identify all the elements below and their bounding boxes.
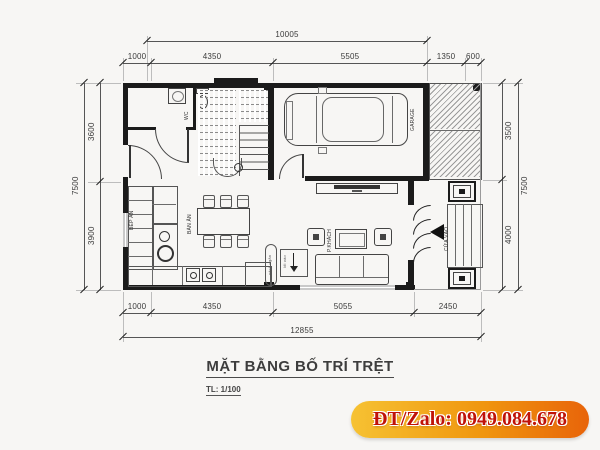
partition-label: vách ngăn — [268, 248, 272, 282]
hatch-pattern — [430, 131, 480, 177]
dim-label: 600 — [458, 53, 488, 61]
dimension-line — [123, 313, 481, 314]
step-line — [463, 204, 464, 266]
extension-line — [88, 182, 121, 183]
wall — [123, 83, 128, 145]
dimension-line — [502, 83, 503, 290]
contact-phone-label: ĐT/Zalo: 0949.084.678 — [373, 408, 567, 431]
dimension-line — [123, 337, 481, 338]
folding-door-panel — [413, 247, 431, 263]
counter-line — [128, 242, 152, 243]
dim-label: 5505 — [316, 53, 384, 61]
dim-label: 7500 — [521, 156, 531, 216]
window — [300, 287, 395, 288]
entry-note-arrowhead — [290, 266, 298, 272]
dim-label: 4000 — [505, 210, 515, 260]
floor-plan-sheet: CỬA VÀO WC GARAGE BẾP ĂN — [0, 0, 600, 450]
cabinet-line — [152, 204, 176, 205]
counter-line — [128, 256, 152, 257]
tv-stand — [352, 190, 362, 192]
wall — [128, 127, 156, 130]
dimension-line — [518, 83, 519, 290]
dim-label: 1000 — [115, 53, 159, 61]
dimension-line — [100, 83, 101, 290]
counter-line — [222, 266, 223, 285]
entry-steps — [447, 204, 483, 268]
dim-label: 3500 — [505, 106, 515, 156]
page-title: MẶT BẰNG BỐ TRÍ TRỆT — [206, 358, 393, 378]
dim-label: 1000 — [115, 303, 159, 311]
stove-burner — [157, 245, 174, 262]
armchair-cushion — [380, 234, 386, 240]
wc-sink-basin — [172, 91, 184, 102]
dimension-line — [147, 41, 427, 42]
stair-flight-treads — [239, 125, 269, 176]
dining-chair — [237, 235, 249, 248]
dining-chair — [203, 195, 215, 208]
porch-column — [448, 268, 476, 289]
kitchen-label: BẾP ĂN — [130, 205, 135, 235]
entry-label: CỬA VÀO — [445, 219, 450, 259]
wc-door-arc — [155, 129, 189, 163]
dining-label: BÀN ĂN — [188, 209, 193, 239]
hatch-pattern — [430, 84, 480, 129]
car-mirror — [318, 87, 327, 94]
dim-label: 4350 — [178, 303, 246, 311]
dim-label: 4350 — [178, 53, 246, 61]
counter-line — [128, 200, 152, 201]
stair-newel-post — [234, 163, 243, 172]
dim-label: 10005 — [252, 31, 322, 39]
dining-chair — [237, 195, 249, 208]
stair-flight-dashed — [239, 90, 268, 122]
step-line — [455, 204, 456, 266]
sink-drain — [206, 272, 213, 279]
wc-label: WC — [185, 107, 190, 125]
sofa-back-line — [316, 277, 388, 278]
dining-chair — [203, 235, 215, 248]
hatch-divider — [430, 130, 480, 131]
porch-edge — [414, 289, 481, 290]
dim-label: 12855 — [262, 327, 342, 335]
car-cabin — [322, 97, 384, 142]
dim-label: 7500 — [72, 156, 82, 216]
dining-chair — [220, 235, 232, 248]
scale-note: TL: 1/100 — [206, 385, 241, 396]
dim-label: 2450 — [420, 303, 476, 311]
armchair-cushion — [313, 234, 319, 240]
counter-line — [182, 266, 183, 285]
porch-column — [448, 181, 476, 202]
dining-chair — [220, 195, 232, 208]
dimension-line — [123, 63, 481, 64]
step-line — [471, 204, 472, 266]
dimension-line — [84, 83, 85, 290]
garage-label: GARAGE — [411, 102, 416, 138]
car-hood-line — [316, 96, 317, 143]
dim-label: 5055 — [309, 303, 377, 311]
tv — [334, 185, 380, 189]
window-lintel — [214, 78, 258, 83]
sofa-line — [363, 256, 364, 277]
contact-banner: ĐT/Zalo: 0949.084.678 — [351, 401, 589, 438]
wall — [408, 180, 414, 205]
sofa-line — [339, 256, 340, 277]
dining-table — [197, 208, 250, 235]
kitchen-cabinet — [152, 186, 178, 224]
dim-label: 3600 — [88, 107, 98, 157]
entry-note-label: lối vào — [283, 251, 287, 273]
car-grille — [286, 101, 293, 140]
garage-door-arc — [279, 154, 304, 179]
sofa — [315, 254, 389, 285]
entry-note-arrow — [293, 253, 294, 266]
sink-drain — [190, 272, 197, 279]
title-block: MẶT BẰNG BỐ TRÍ TRỆT — [0, 358, 600, 378]
coffee-table-inner — [339, 233, 365, 247]
side-door-arc — [128, 145, 162, 179]
garage-door-leaf — [302, 154, 304, 178]
car-trunk-line — [392, 96, 393, 143]
column — [406, 282, 414, 290]
counter-line — [152, 266, 153, 285]
dim-label: 3900 — [88, 211, 98, 261]
entry-arrow-icon — [430, 224, 444, 240]
car-mirror — [318, 147, 327, 154]
extension-line — [483, 180, 507, 181]
window — [125, 213, 126, 247]
wc-door-leaf — [187, 129, 189, 162]
stove-burner — [159, 231, 170, 242]
living-label: P.KHÁCH — [328, 225, 333, 257]
side-door-leaf — [129, 145, 131, 178]
floor-plan-drawing: CỬA VÀO WC GARAGE BẾP ĂN — [0, 0, 600, 450]
